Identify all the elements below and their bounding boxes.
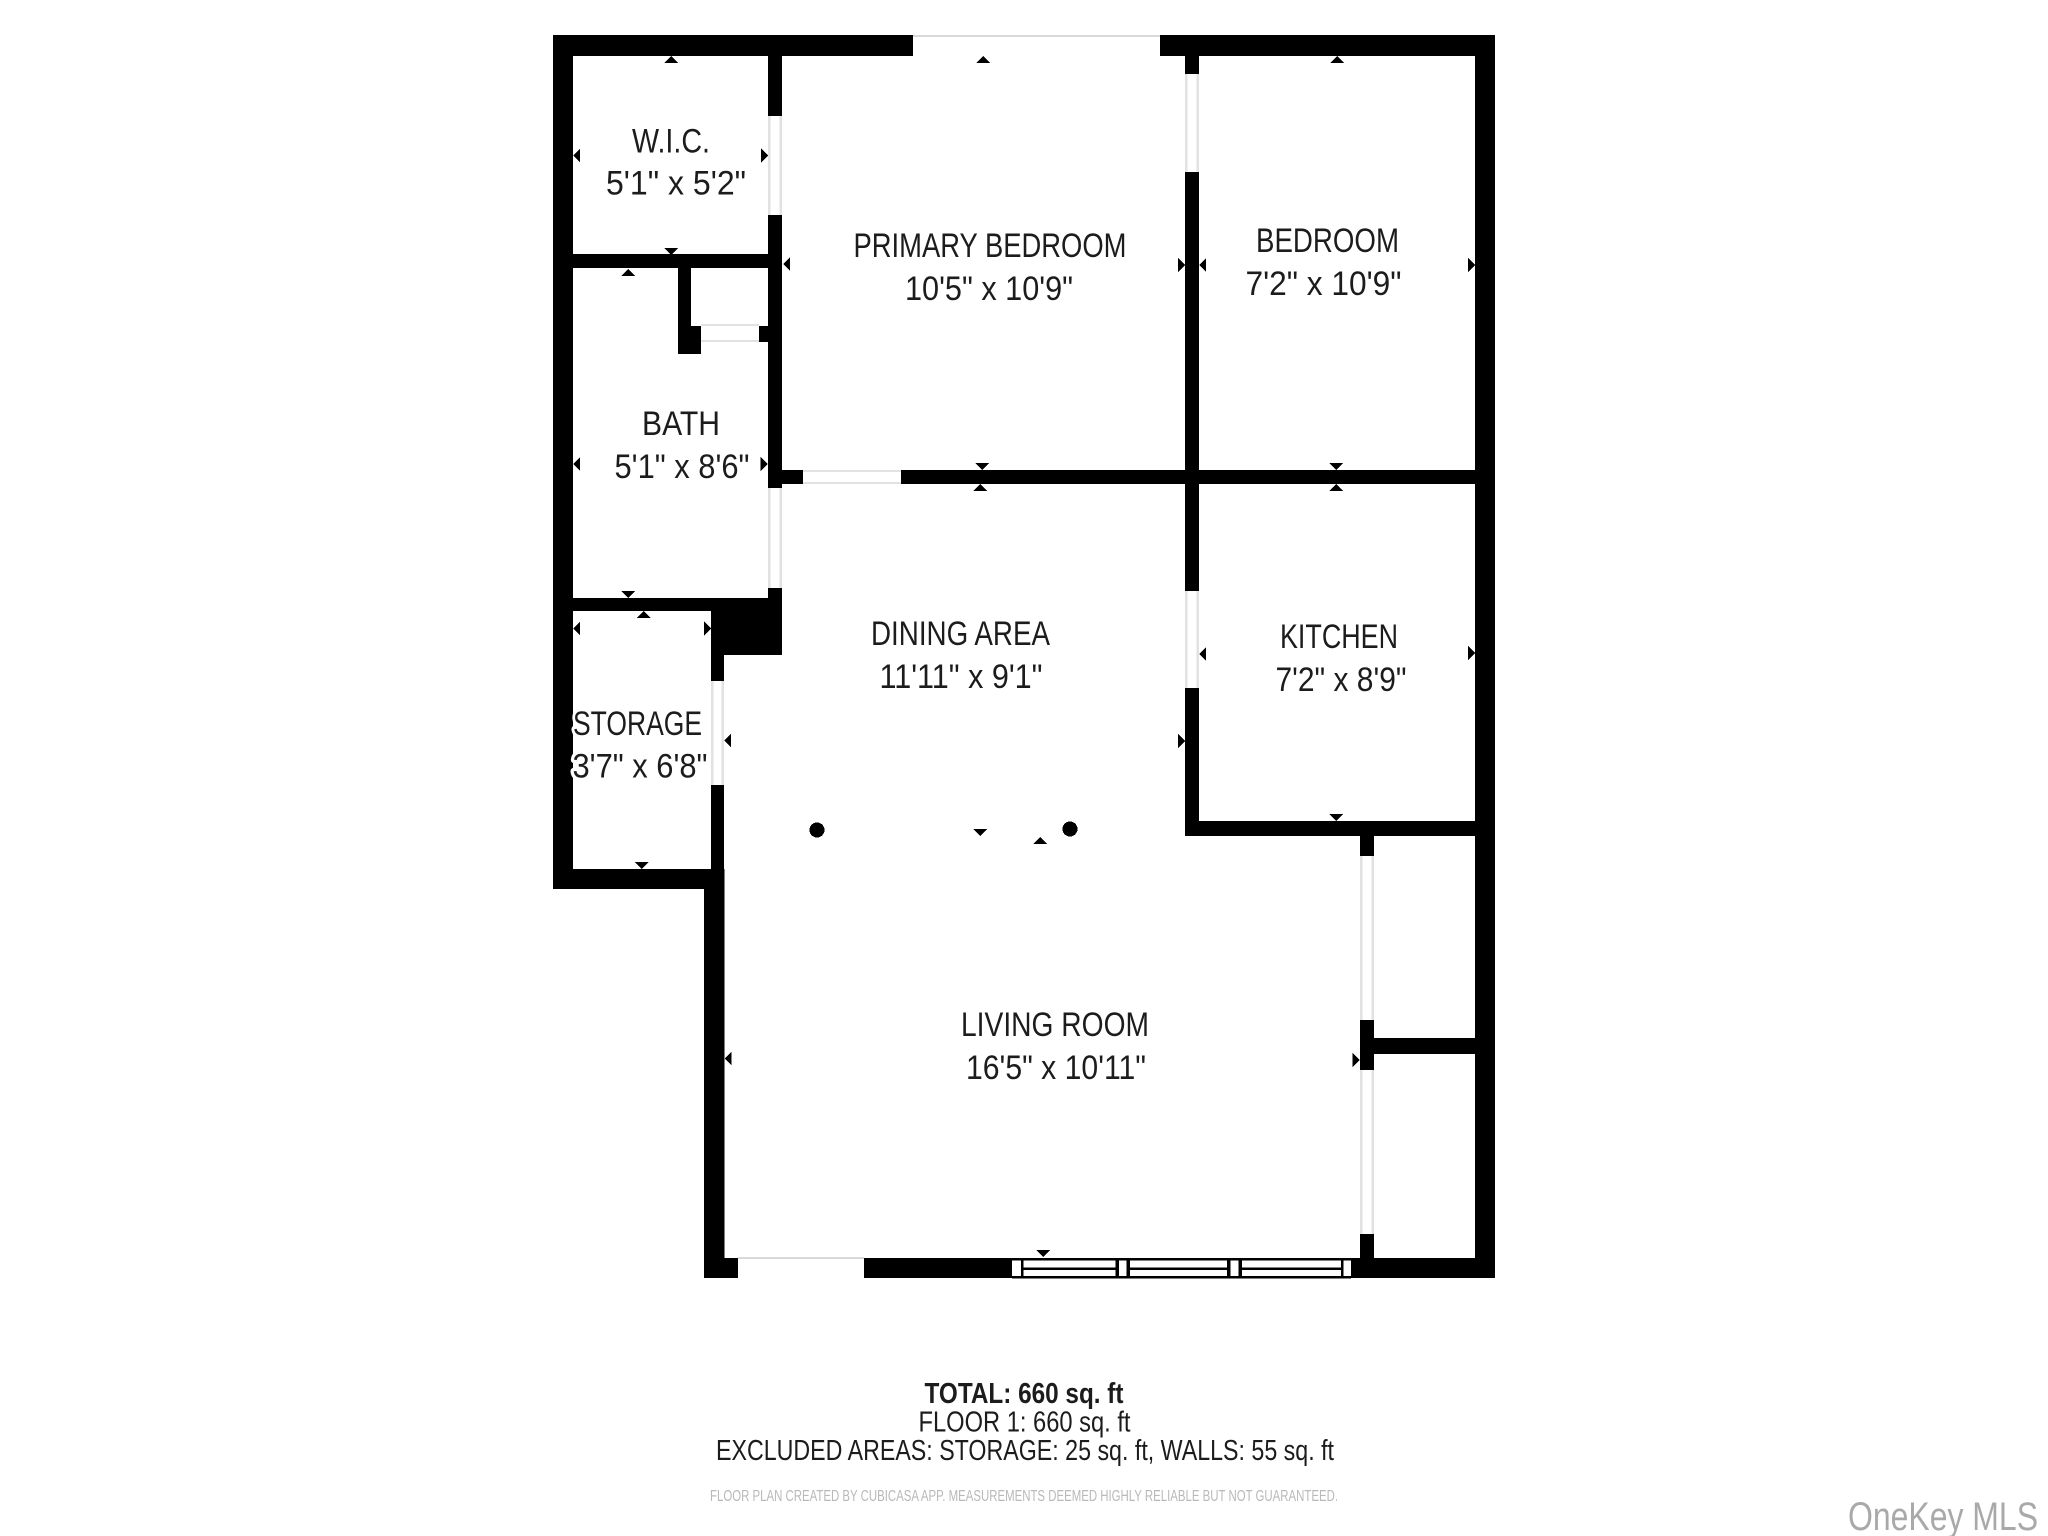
- svg-text:16'5" x 10'11": 16'5" x 10'11": [966, 1049, 1146, 1087]
- svg-text:11'11" x 9'1": 11'11" x 9'1": [880, 658, 1043, 696]
- svg-text:10'5" x 10'9": 10'5" x 10'9": [905, 270, 1073, 308]
- svg-text:BEDROOM: BEDROOM: [1256, 222, 1399, 260]
- svg-text:TOTAL: 660 sq. ft: TOTAL: 660 sq. ft: [925, 1378, 1124, 1410]
- svg-text:5'1" x 5'2": 5'1" x 5'2": [606, 165, 746, 203]
- svg-text:OneKey MLS: OneKey MLS: [1848, 1495, 2038, 1536]
- svg-text:7'2" x 8'9": 7'2" x 8'9": [1276, 661, 1407, 699]
- svg-text:DINING AREA: DINING AREA: [871, 615, 1050, 653]
- svg-text:7'2" x 10'9": 7'2" x 10'9": [1246, 265, 1402, 303]
- svg-text:5'1" x 8'6": 5'1" x 8'6": [615, 448, 750, 486]
- svg-text:BATH: BATH: [642, 405, 720, 443]
- svg-text:W.I.C.: W.I.C.: [632, 123, 710, 161]
- svg-text:STORAGE: STORAGE: [573, 705, 702, 743]
- svg-text:FLOOR 1: 660 sq. ft: FLOOR 1: 660 sq. ft: [919, 1407, 1131, 1439]
- svg-text:FLOOR PLAN CREATED BY CUBICASA: FLOOR PLAN CREATED BY CUBICASA APP. MEAS…: [710, 1488, 1338, 1505]
- svg-text:EXCLUDED AREAS: STORAGE: 25 sq: EXCLUDED AREAS: STORAGE: 25 sq. ft, WALL…: [716, 1435, 1334, 1467]
- svg-text:LIVING ROOM: LIVING ROOM: [961, 1006, 1149, 1044]
- svg-text:3'7" x 6'8": 3'7" x 6'8": [573, 748, 708, 786]
- svg-text:KITCHEN: KITCHEN: [1280, 618, 1398, 656]
- svg-text:PRIMARY BEDROOM: PRIMARY BEDROOM: [854, 227, 1127, 265]
